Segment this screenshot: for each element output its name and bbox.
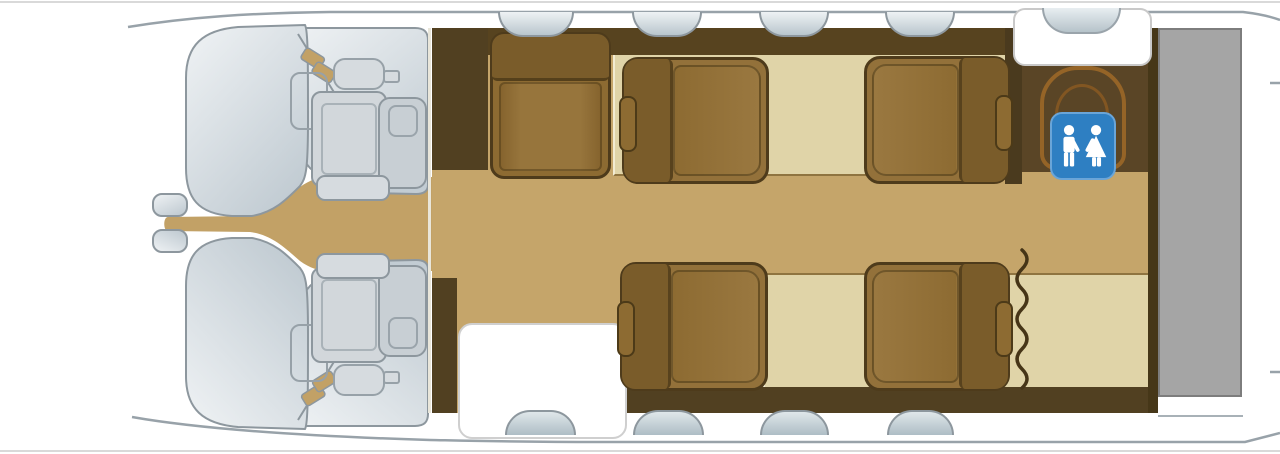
restroom-sign xyxy=(1050,112,1116,180)
cockpit-cabin-divider xyxy=(428,28,431,413)
woman-icon xyxy=(1091,125,1101,135)
nose-latch-tab-top xyxy=(153,194,187,216)
nose-latch-tab-bottom xyxy=(153,230,187,252)
seat-cushion xyxy=(499,82,602,171)
sink-unit xyxy=(1013,8,1152,66)
seat-knob xyxy=(383,70,400,83)
seat-armrest xyxy=(316,253,390,279)
seat-cushion xyxy=(872,64,959,176)
seat-cushion xyxy=(872,270,959,383)
pilot-seat-top xyxy=(288,56,428,198)
seat-cushion xyxy=(311,91,387,187)
privacy-curtain xyxy=(1010,248,1034,390)
seat-backrest xyxy=(378,265,427,357)
divan-seat xyxy=(490,32,611,179)
club-seat-forward-top xyxy=(622,57,769,184)
entry-bulkhead xyxy=(432,28,488,170)
cabin-window-bottom-2 xyxy=(760,410,829,435)
club-seat-aft-bottom xyxy=(864,262,1010,391)
seat-backrest xyxy=(492,34,609,81)
man-icon xyxy=(1064,125,1074,135)
club-seat-forward-bottom xyxy=(620,262,768,391)
seat-headrest xyxy=(388,317,418,349)
seat-cushion xyxy=(673,65,761,176)
aft-bulkhead xyxy=(1148,28,1158,413)
restroom-man-woman-icon xyxy=(1056,121,1110,171)
cabin-window-bottom-1 xyxy=(633,410,704,435)
seat-armrest xyxy=(316,175,390,201)
seat-armrest xyxy=(995,95,1013,151)
tail-hint-line xyxy=(1270,83,1280,372)
seat-knob xyxy=(383,371,400,384)
club-seat-aft-top xyxy=(864,56,1010,184)
seat-armrest xyxy=(333,364,385,396)
seat-armrest xyxy=(333,58,385,90)
pilot-seat-bottom xyxy=(288,256,428,398)
seat-armrest xyxy=(619,96,637,152)
seat-armrest xyxy=(617,301,635,357)
door-window xyxy=(505,410,576,435)
seat-cushion xyxy=(311,267,387,363)
cabin-floorplan-diagram xyxy=(0,0,1280,454)
seat-headrest xyxy=(388,105,418,137)
baggage-compartment xyxy=(1158,28,1242,397)
sink-basin xyxy=(1042,8,1121,34)
seat-cushion xyxy=(671,270,760,383)
door-side-bulkhead-strip xyxy=(432,278,457,413)
